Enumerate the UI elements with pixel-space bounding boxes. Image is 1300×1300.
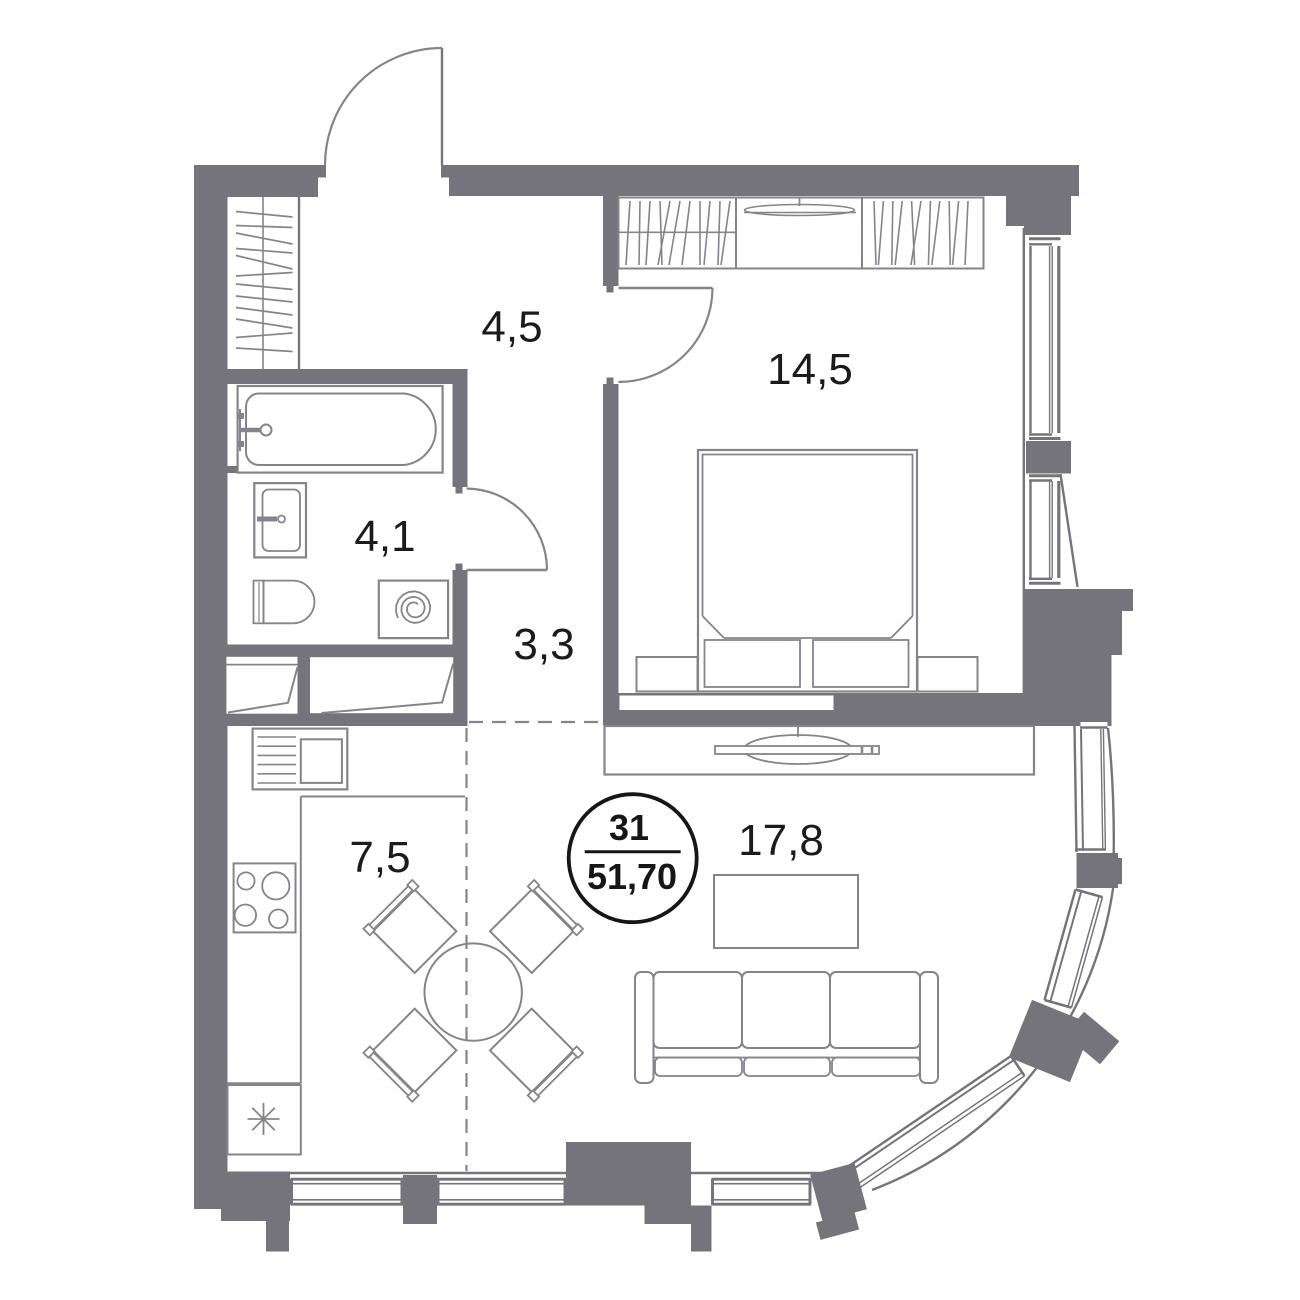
svg-text:4,5: 4,5 bbox=[481, 303, 542, 352]
svg-text:4,1: 4,1 bbox=[354, 512, 415, 561]
svg-text:17,8: 17,8 bbox=[738, 816, 824, 865]
svg-text:14,5: 14,5 bbox=[767, 345, 853, 394]
svg-text:51,70: 51,70 bbox=[587, 856, 677, 897]
svg-text:3,3: 3,3 bbox=[513, 620, 574, 669]
svg-text:7,5: 7,5 bbox=[349, 833, 410, 882]
svg-text:31: 31 bbox=[609, 807, 649, 848]
